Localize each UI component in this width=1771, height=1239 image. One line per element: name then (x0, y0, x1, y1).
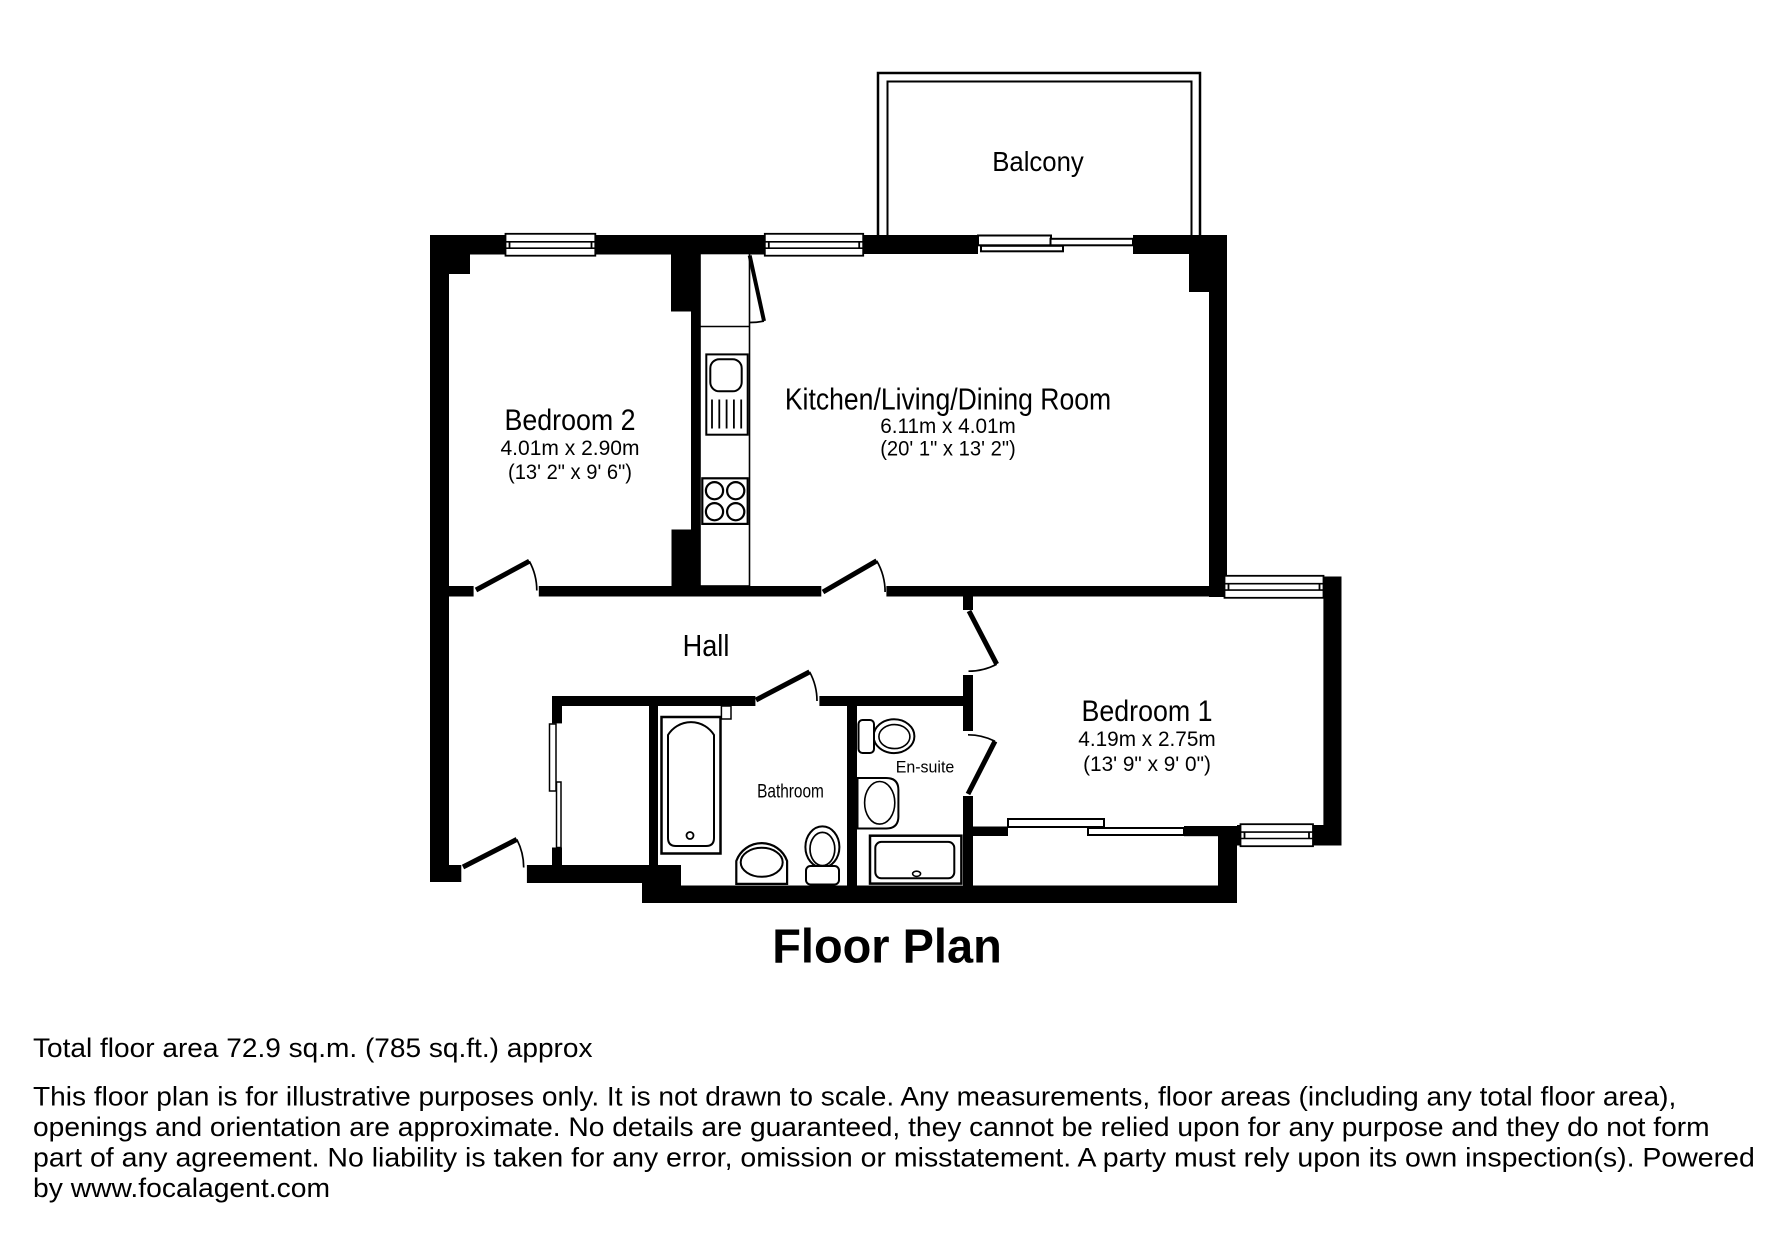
svg-text:This floor plan is for illustr: This floor plan is for illustrative purp… (33, 1082, 1676, 1112)
svg-text:Bedroom 2: Bedroom 2 (505, 404, 636, 437)
svg-text:Bathroom: Bathroom (757, 782, 824, 803)
svg-text:(13' 2" x 9' 6"): (13' 2" x 9' 6") (508, 461, 632, 484)
svg-text:Balcony: Balcony (992, 146, 1084, 177)
svg-text:(13' 9" x 9' 0"): (13' 9" x 9' 0") (1083, 753, 1211, 776)
svg-text:Total floor area 72.9 sq.m. (7: Total floor area 72.9 sq.m. (785 sq.ft.)… (33, 1033, 593, 1063)
svg-text:Hall: Hall (683, 628, 730, 663)
svg-text:En-suite: En-suite (896, 758, 955, 777)
svg-text:6.11m x 4.01m: 6.11m x 4.01m (880, 415, 1016, 438)
svg-text:Bedroom 1: Bedroom 1 (1082, 695, 1213, 728)
svg-text:(20' 1" x 13' 2"): (20' 1" x 13' 2") (880, 438, 1016, 461)
svg-text:4.01m x 2.90m: 4.01m x 2.90m (501, 437, 640, 460)
svg-text:by www.focalagent.com: by www.focalagent.com (33, 1173, 330, 1203)
svg-text:Floor Plan: Floor Plan (772, 921, 1002, 974)
svg-text:openings and orientation are a: openings and orientation are approximate… (33, 1112, 1710, 1142)
svg-text:part of any agreement. No liab: part of any agreement. No liability is t… (33, 1143, 1755, 1173)
svg-text:4.19m x 2.75m: 4.19m x 2.75m (1078, 728, 1215, 751)
svg-text:Kitchen/Living/Dining Room: Kitchen/Living/Dining Room (785, 382, 1111, 417)
